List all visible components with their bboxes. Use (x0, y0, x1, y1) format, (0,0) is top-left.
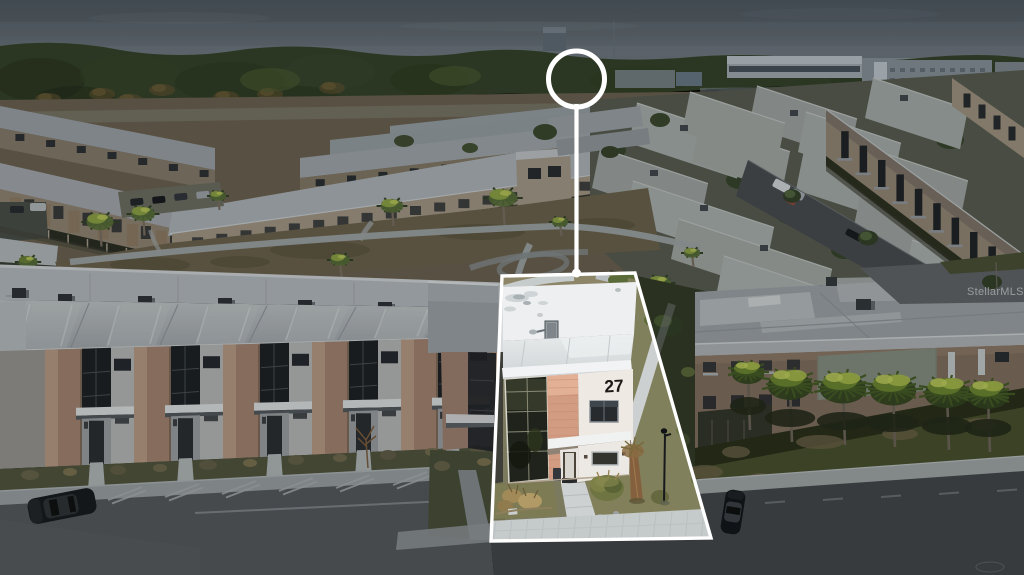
svg-text:27: 27 (604, 376, 624, 397)
svg-text:StellarMLS: StellarMLS (967, 286, 1024, 298)
